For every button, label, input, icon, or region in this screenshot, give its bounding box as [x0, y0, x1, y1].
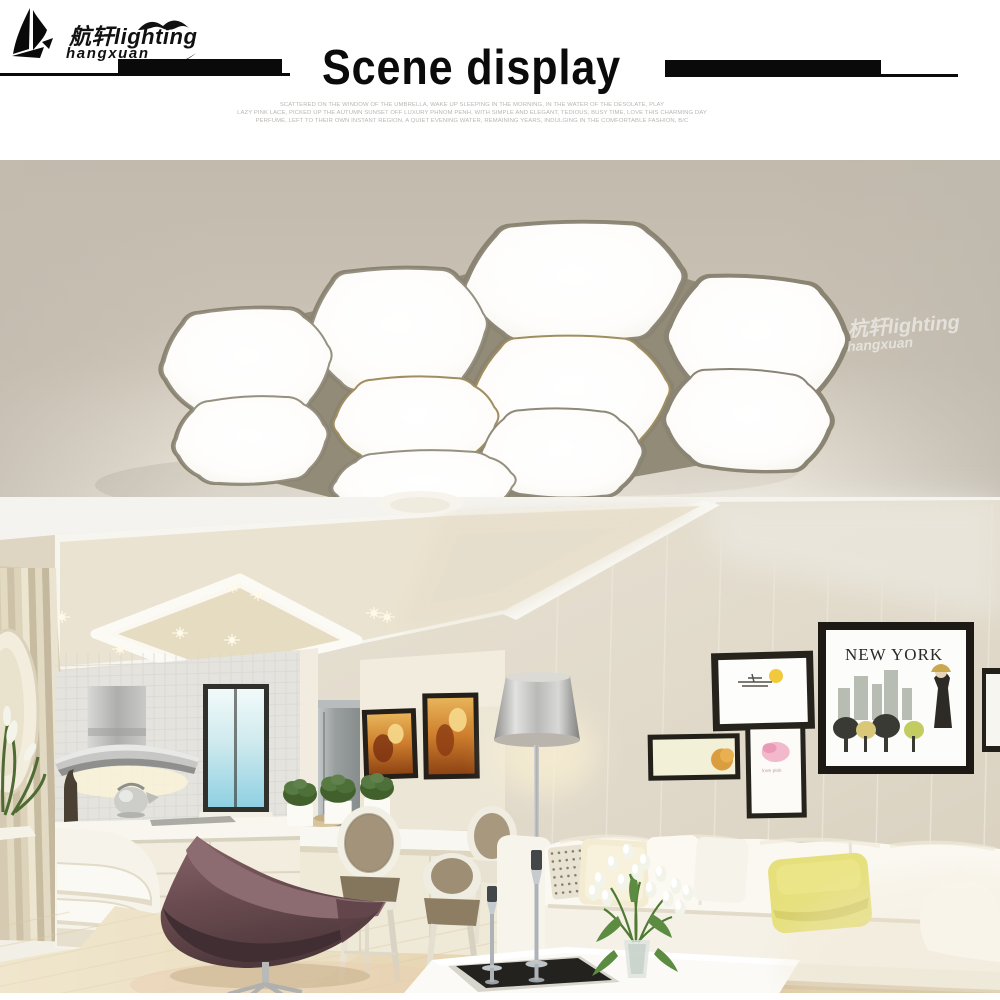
svg-text:NEW YORK: NEW YORK: [845, 645, 943, 664]
svg-text:love pink: love pink: [762, 768, 782, 774]
